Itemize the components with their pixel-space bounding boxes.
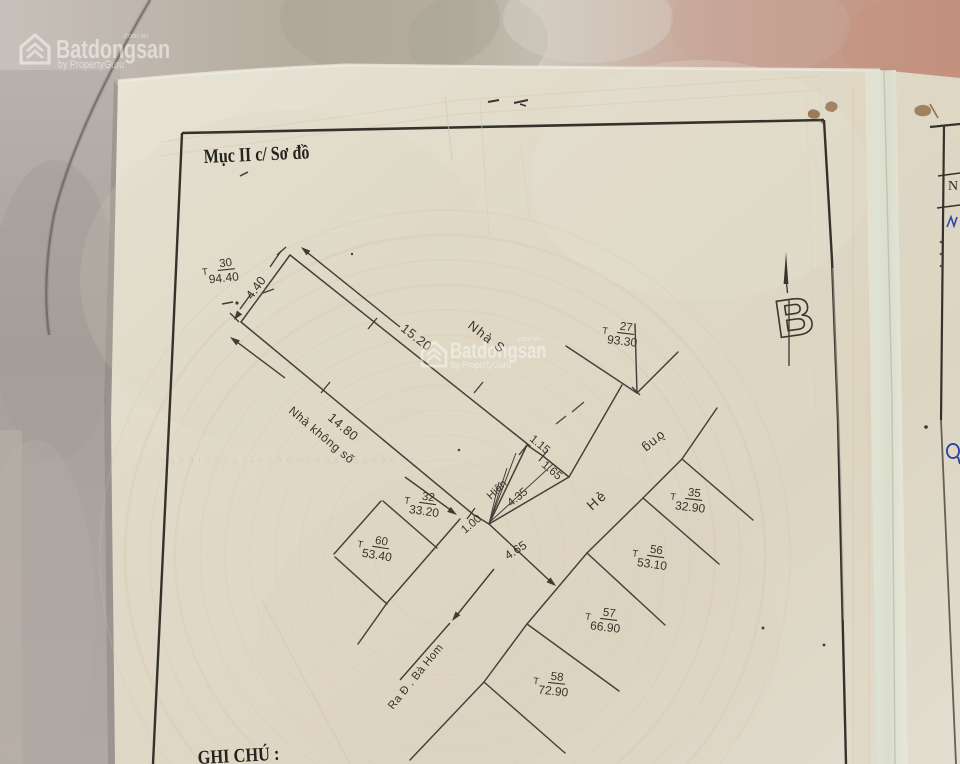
svg-text:30: 30 <box>219 257 233 270</box>
svg-text:v q h ộ i c ấ p g i ấ y c h: v q h ộ i c ấ p g i ấ y c h ứ n g n h ậ … <box>160 455 414 466</box>
svg-text:.com.vn: .com.vn <box>516 336 541 343</box>
svg-text:35: 35 <box>687 487 701 500</box>
svg-text:57: 57 <box>602 607 616 620</box>
svg-text:Mục II c/ Sơ đồ: Mục II c/ Sơ đồ <box>203 141 310 168</box>
svg-text:B: B <box>771 286 817 350</box>
svg-text:.com.vn: .com.vn <box>122 31 148 40</box>
svg-text:N: N <box>948 179 958 194</box>
svg-text:32: 32 <box>421 491 435 505</box>
svg-text:by PropertyGuru: by PropertyGuru <box>451 359 511 370</box>
svg-text:58: 58 <box>550 671 564 684</box>
svg-text:by PropertyGuru: by PropertyGuru <box>58 59 124 71</box>
svg-text:56: 56 <box>649 544 663 558</box>
svg-text:27: 27 <box>619 321 633 334</box>
